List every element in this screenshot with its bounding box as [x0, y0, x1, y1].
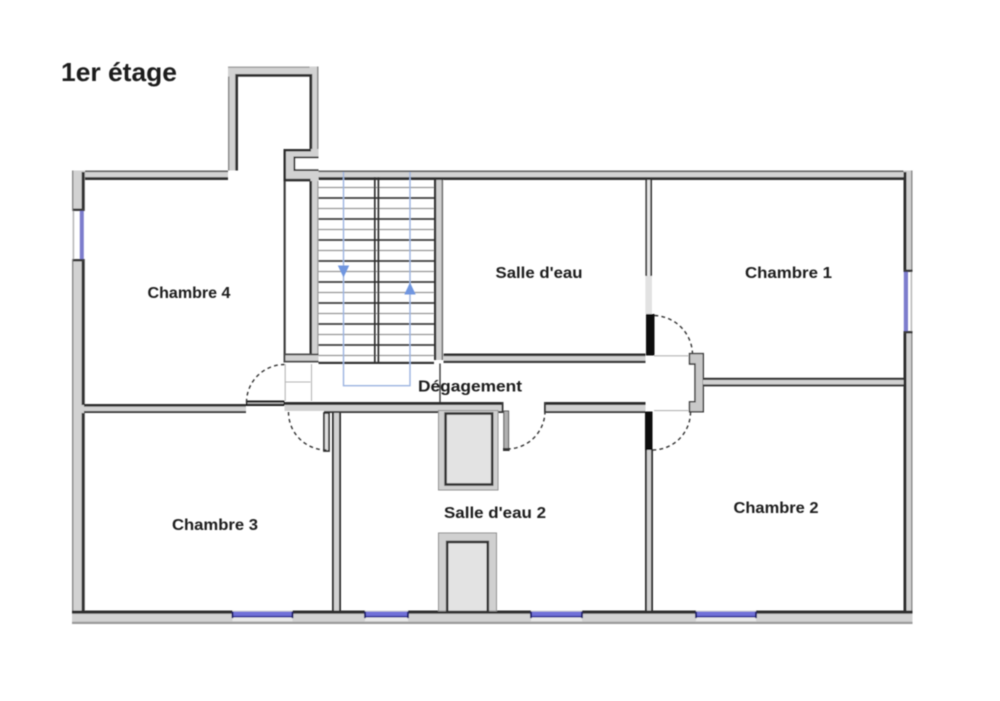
svg-text:Chambre 1: Chambre 1	[745, 265, 832, 282]
svg-text:1er étage: 1er étage	[61, 57, 177, 87]
svg-text:Dégagement: Dégagement	[418, 379, 523, 396]
svg-text:Chambre 4: Chambre 4	[148, 285, 231, 302]
svg-text:Salle d'eau: Salle d'eau	[496, 265, 583, 282]
svg-text:Chambre 3: Chambre 3	[172, 517, 258, 534]
svg-text:Salle d'eau 2: Salle d'eau 2	[444, 505, 546, 522]
svg-text:Chambre 2: Chambre 2	[734, 500, 819, 517]
